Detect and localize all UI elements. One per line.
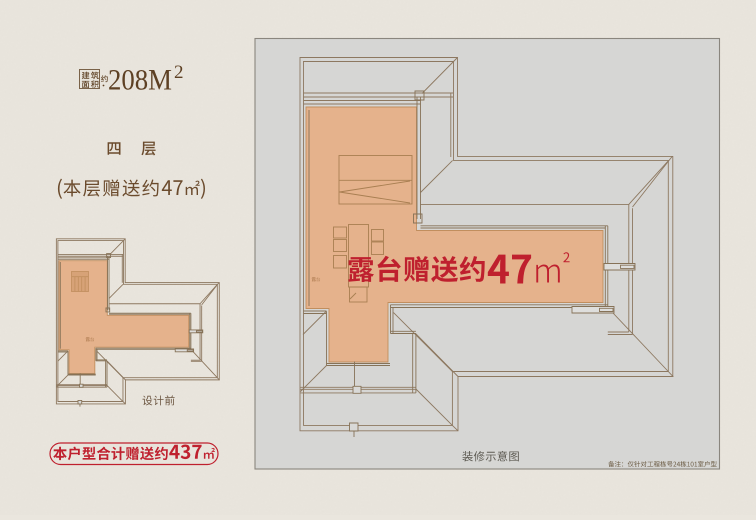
svg-text:208M: 208M — [108, 64, 172, 97]
svg-text:2: 2 — [174, 62, 184, 83]
